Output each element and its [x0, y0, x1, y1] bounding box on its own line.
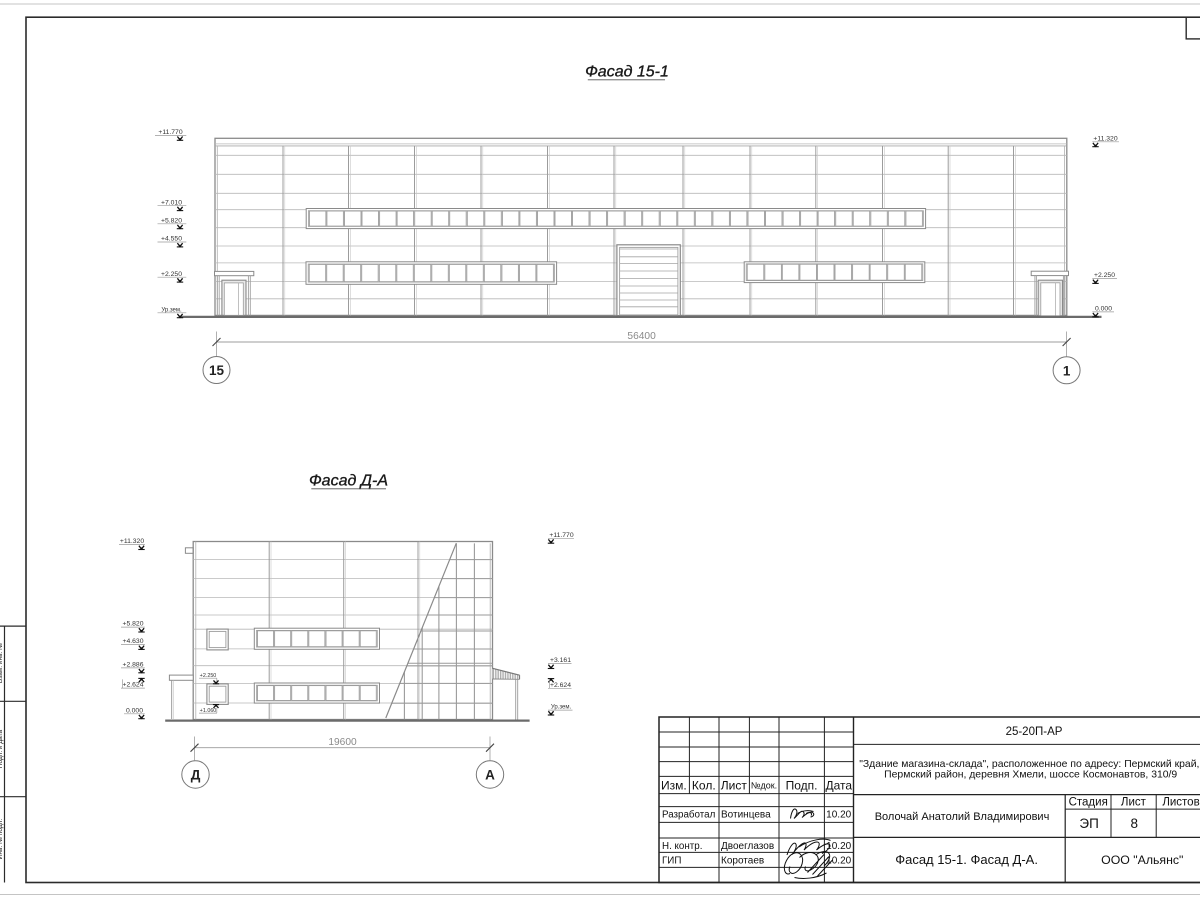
svg-text:Листов: Листов	[1162, 797, 1199, 809]
svg-text:10.20: 10.20	[826, 810, 851, 821]
svg-text:Изм.: Изм.	[661, 779, 687, 793]
svg-text:+2.886: +2.886	[123, 662, 144, 669]
svg-text:+2.624: +2.624	[123, 682, 144, 689]
svg-text:+5.820: +5.820	[161, 217, 182, 224]
svg-text:Стадия: Стадия	[1069, 797, 1108, 809]
svg-text:Вотинцева: Вотинцева	[721, 810, 771, 821]
svg-text:+5.820: +5.820	[123, 621, 144, 628]
svg-text:+4.550: +4.550	[161, 236, 182, 243]
svg-text:+11.770: +11.770	[549, 532, 573, 539]
svg-text:А: А	[485, 767, 495, 782]
svg-text:Взам. инв. №: Взам. инв. №	[0, 643, 4, 683]
svg-text:+2.250: +2.250	[161, 271, 182, 278]
svg-text:ЭП: ЭП	[1079, 816, 1098, 831]
svg-text:Коротаев: Коротаев	[721, 856, 764, 867]
svg-text:"Здание магазина-склада", расп: "Здание магазина-склада", расположенное …	[859, 759, 1199, 770]
svg-text:Пермский район, деревня Хмели,: Пермский район, деревня Хмели, шоссе Кос…	[884, 770, 1177, 781]
svg-text:+2.624: +2.624	[550, 682, 571, 689]
svg-text:Лист: Лист	[1121, 797, 1147, 809]
svg-text:№док.: №док.	[751, 781, 777, 791]
svg-text:Д: Д	[191, 767, 201, 782]
svg-text:+4.630: +4.630	[123, 638, 144, 645]
svg-text:Разработал: Разработал	[662, 810, 716, 821]
svg-text:0.000: 0.000	[126, 707, 143, 714]
svg-text:+2.250: +2.250	[1094, 272, 1115, 279]
svg-text:Фасад Д-А: Фасад Д-А	[309, 472, 388, 489]
svg-text:+11.320: +11.320	[120, 538, 144, 545]
svg-text:Кол.: Кол.	[692, 779, 716, 793]
svg-text:15: 15	[209, 363, 225, 378]
svg-text:Фасад 15-1. Фасад Д-А.: Фасад 15-1. Фасад Д-А.	[895, 852, 1038, 867]
svg-text:Подп.: Подп.	[786, 779, 818, 793]
svg-text:Инв. № подл.: Инв. № подл.	[0, 819, 4, 860]
svg-text:Фасад 15-1: Фасад 15-1	[585, 64, 669, 81]
svg-text:56400: 56400	[627, 331, 656, 342]
svg-text:ГИП: ГИП	[662, 856, 681, 867]
svg-text:+3.161: +3.161	[550, 657, 571, 664]
svg-text:+11.320: +11.320	[1093, 135, 1117, 142]
svg-text:1: 1	[1063, 363, 1071, 378]
svg-text:8: 8	[1131, 816, 1139, 831]
svg-text:+11.770: +11.770	[158, 129, 182, 136]
svg-text:25-20П-АР: 25-20П-АР	[1006, 726, 1063, 738]
svg-text:0.000: 0.000	[1095, 306, 1112, 313]
svg-text:Подп. и дата: Подп. и дата	[0, 729, 4, 768]
svg-text:Дата: Дата	[826, 779, 853, 793]
svg-text:ООО "Альянс": ООО "Альянс"	[1101, 853, 1183, 867]
svg-text:19600: 19600	[328, 737, 357, 748]
svg-text:Двоеглазов: Двоеглазов	[721, 841, 774, 852]
svg-text:Волочай Анатолий Владимирович: Волочай Анатолий Владимирович	[875, 811, 1050, 823]
svg-text:Лист: Лист	[721, 779, 748, 793]
svg-text:Н. контр.: Н. контр.	[662, 841, 702, 852]
svg-text:+7.010: +7.010	[161, 199, 182, 206]
